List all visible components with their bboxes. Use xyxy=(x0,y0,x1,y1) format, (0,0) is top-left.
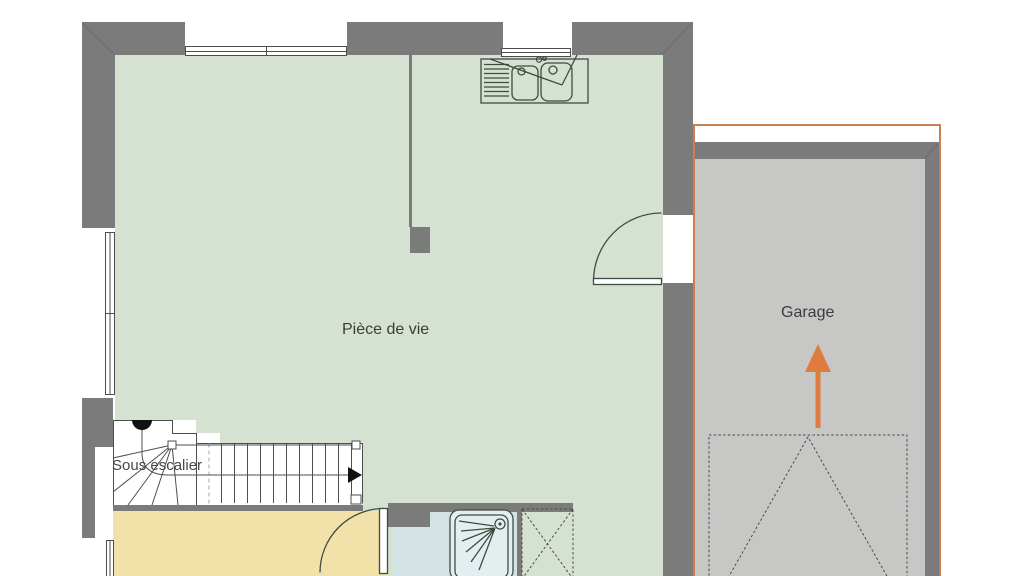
wall-living-garage-lower xyxy=(663,283,693,576)
wall-under-stairs xyxy=(113,505,363,511)
garage-label: Garage xyxy=(781,304,834,322)
floor-plan: Pièce de vie Garage Sous escalier xyxy=(0,0,1024,576)
exterior-wall-left-lower xyxy=(82,447,95,538)
stair-run-area xyxy=(220,443,363,505)
exterior-wall-left-middle xyxy=(82,398,113,447)
under-stairs-label: Sous escalier xyxy=(112,457,202,474)
exterior-wall-left-upper xyxy=(82,23,115,228)
garage-wall-top xyxy=(695,142,939,159)
wall-shower-room-corner xyxy=(388,503,430,527)
wall-shower-room-right xyxy=(517,509,522,576)
wall-living-garage-upper xyxy=(663,22,693,215)
living-room-label: Pièce de vie xyxy=(342,321,429,339)
garage-wall-right xyxy=(925,159,939,576)
window-icon xyxy=(106,233,115,395)
kitchen-partition-end-post xyxy=(410,227,430,253)
kitchen-partition-wall xyxy=(409,53,412,227)
garage-floor xyxy=(695,159,925,576)
kitchen-floor xyxy=(113,511,388,576)
exterior-wall-top-middle xyxy=(347,22,503,55)
